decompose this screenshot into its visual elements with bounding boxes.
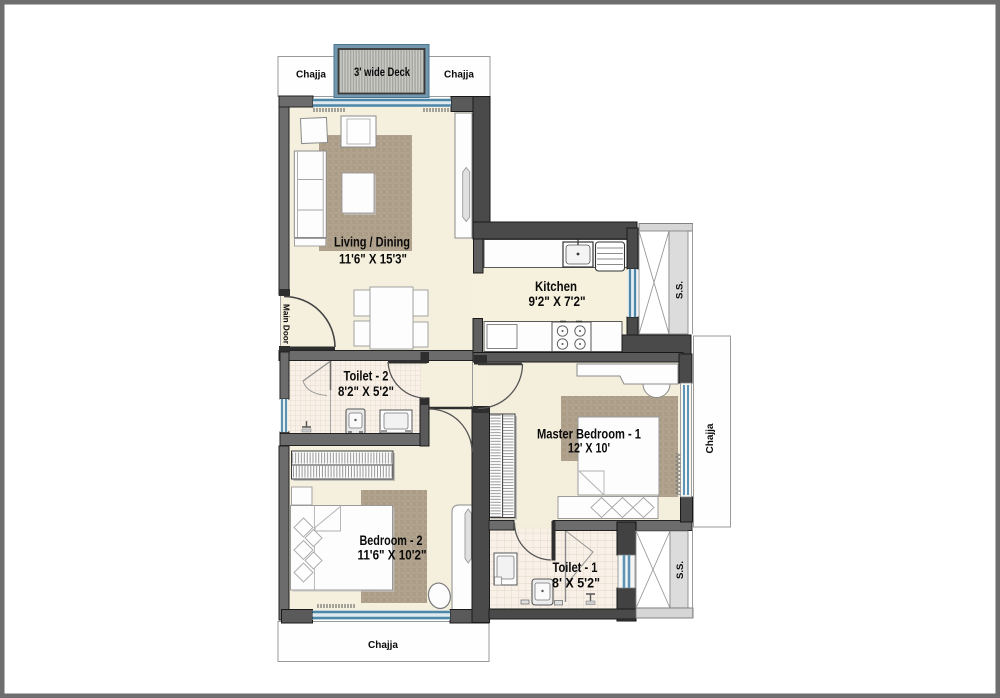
svg-text:Main Door: Main Door xyxy=(282,304,292,345)
svg-text:Chajja: Chajja xyxy=(705,423,716,453)
svg-text:Chajja: Chajja xyxy=(296,70,326,81)
svg-text:Kitchen: Kitchen xyxy=(535,279,577,294)
svg-text:8' X 5'2": 8' X 5'2" xyxy=(552,576,600,591)
svg-text:11'6" X 10'2": 11'6" X 10'2" xyxy=(358,548,427,563)
svg-text:Toilet - 2: Toilet - 2 xyxy=(344,369,389,384)
svg-text:12' X 10': 12' X 10' xyxy=(568,441,610,456)
svg-text:3' wide Deck: 3' wide Deck xyxy=(354,67,410,79)
svg-text:11'6" X 15'3": 11'6" X 15'3" xyxy=(339,252,407,267)
svg-text:Master Bedroom - 1: Master Bedroom - 1 xyxy=(537,427,641,442)
svg-text:S.S.: S.S. xyxy=(675,561,686,579)
svg-text:Toilet - 1: Toilet - 1 xyxy=(553,560,598,575)
svg-text:Living / Dining: Living / Dining xyxy=(334,235,410,250)
svg-text:Chajja: Chajja xyxy=(444,70,474,81)
svg-text:9'2" X 7'2": 9'2" X 7'2" xyxy=(529,294,586,309)
svg-text:Chajja: Chajja xyxy=(368,640,398,651)
svg-text:8'2" X 5'2": 8'2" X 5'2" xyxy=(338,384,394,399)
svg-text:S.S.: S.S. xyxy=(675,281,686,299)
svg-text:Bedroom - 2: Bedroom - 2 xyxy=(360,533,423,548)
